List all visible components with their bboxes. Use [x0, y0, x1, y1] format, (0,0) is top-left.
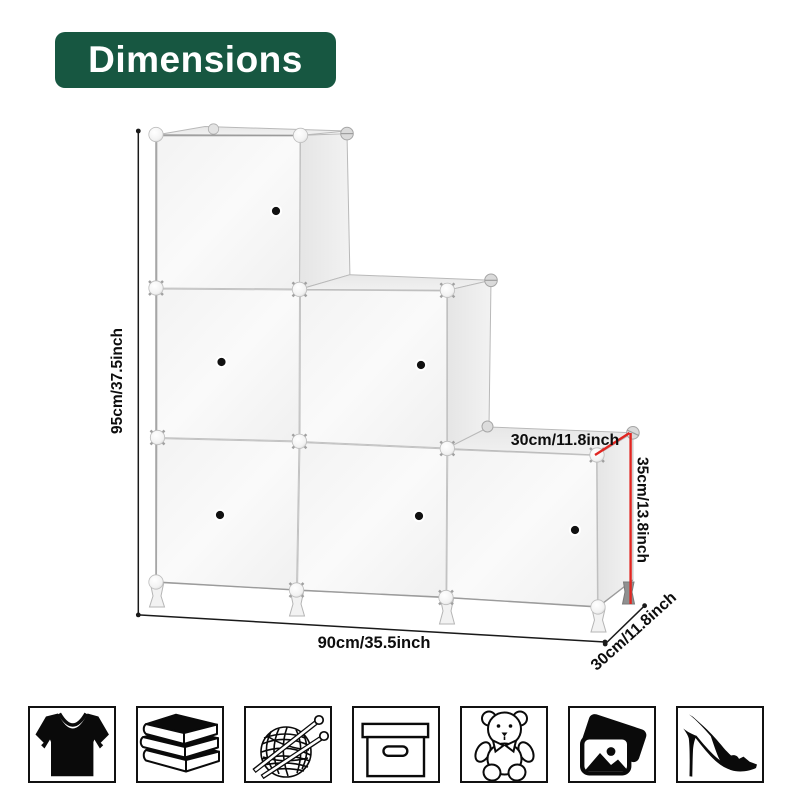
svg-text:90cm/35.5inch: 90cm/35.5inch: [318, 634, 431, 652]
svg-text:35cm/13.8inch: 35cm/13.8inch: [634, 457, 651, 563]
svg-text:30cm/11.8inch: 30cm/11.8inch: [511, 432, 620, 449]
svg-text:95cm/37.5inch: 95cm/37.5inch: [109, 328, 126, 434]
